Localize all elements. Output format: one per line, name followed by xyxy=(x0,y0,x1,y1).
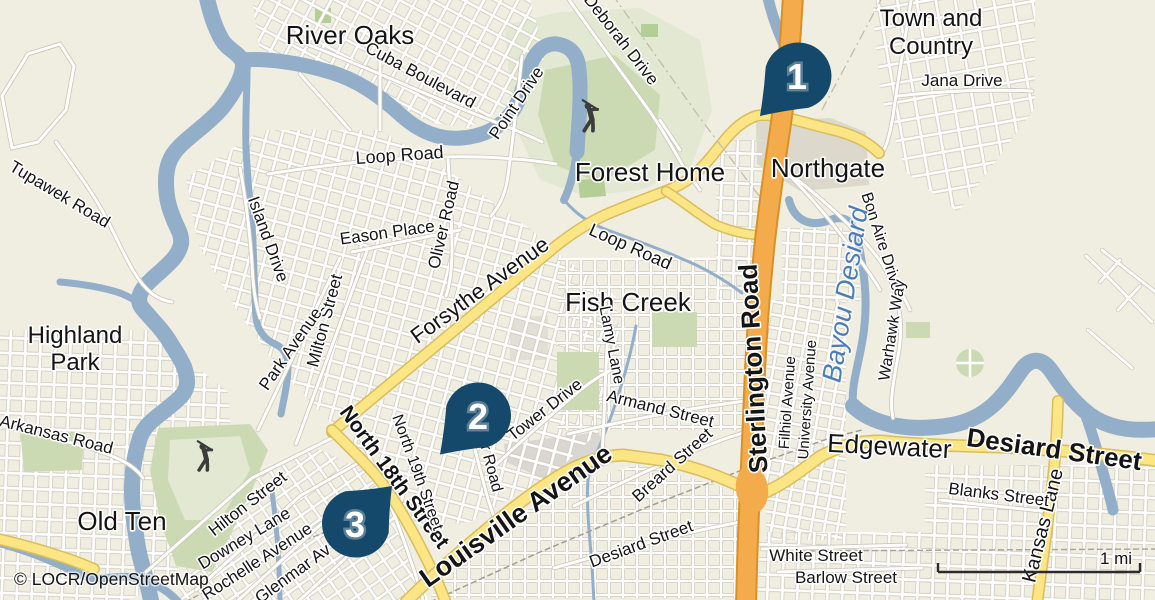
svg-text:Park: Park xyxy=(50,349,100,376)
svg-text:Fish Creek: Fish Creek xyxy=(565,287,692,317)
svg-text:1 mi: 1 mi xyxy=(1100,549,1132,568)
svg-text:3: 3 xyxy=(345,504,365,545)
svg-text:Northgate: Northgate xyxy=(771,153,885,183)
svg-text:River Oaks: River Oaks xyxy=(286,20,415,50)
svg-text:Forest Home: Forest Home xyxy=(575,157,725,187)
svg-text:1: 1 xyxy=(787,56,807,97)
svg-text:White Street: White Street xyxy=(769,546,863,565)
svg-text:Highland: Highland xyxy=(28,322,123,349)
svg-text:Town and: Town and xyxy=(880,5,983,32)
svg-text:2: 2 xyxy=(468,396,488,437)
svg-text:Country: Country xyxy=(889,33,973,60)
svg-text:Old Ten: Old Ten xyxy=(77,506,166,536)
svg-text:Jana Drive: Jana Drive xyxy=(921,71,1002,90)
svg-text:© LOCR/OpenStreetMap: © LOCR/OpenStreetMap xyxy=(14,569,209,589)
svg-text:Barlow Street: Barlow Street xyxy=(795,568,897,587)
